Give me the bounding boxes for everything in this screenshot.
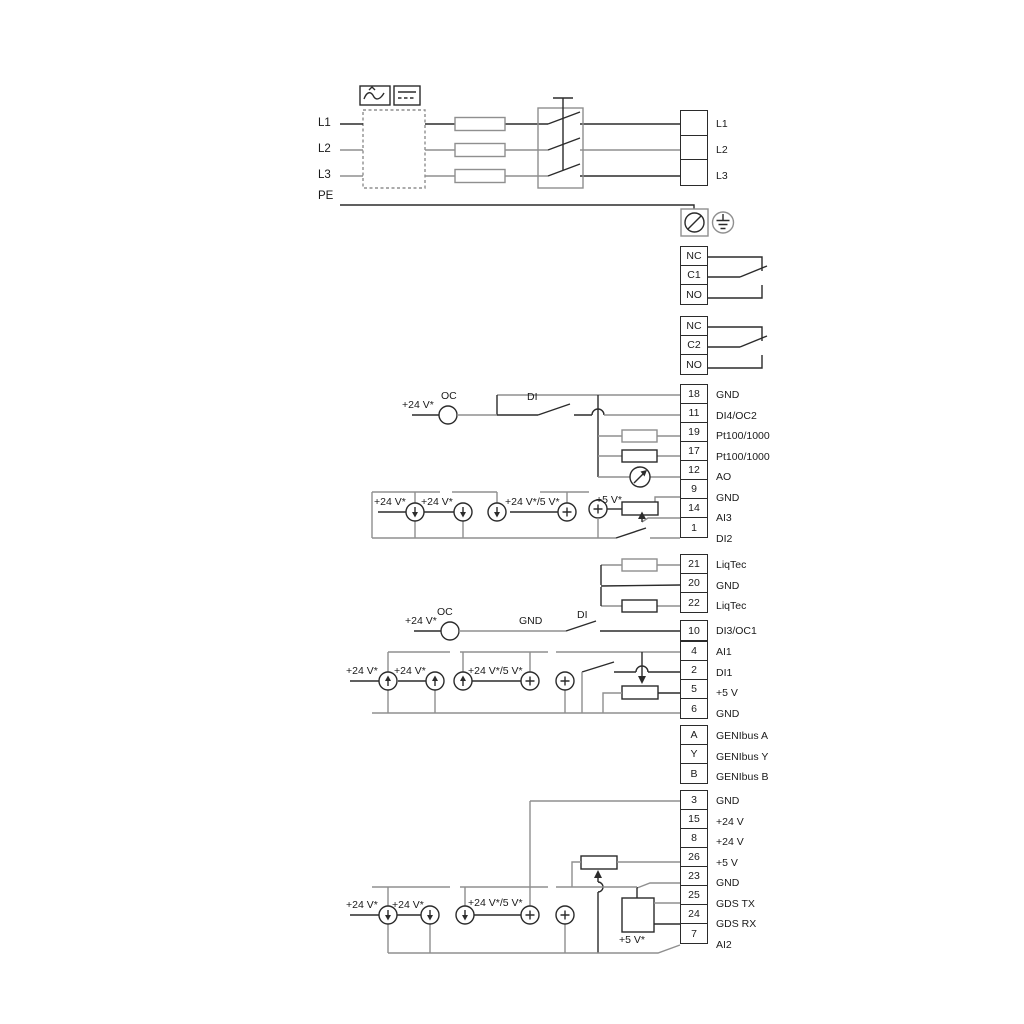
terminal-cell: C2 — [681, 336, 707, 355]
terminal-block-io: 18 11 19 17 12 9 14 1 — [680, 384, 708, 538]
gds-sensor-box — [622, 898, 654, 932]
terminal-label: DI2 — [716, 529, 770, 550]
terminal-cell: 8 — [681, 829, 707, 848]
terminal-label: Pt100/1000 — [716, 447, 770, 468]
terminal-cell: A — [681, 726, 707, 745]
terminal-label: GND — [716, 873, 756, 894]
terminal-label: LiqTec — [716, 555, 746, 576]
terminal-cell: 22 — [681, 593, 707, 612]
terminal-label: LiqTec — [716, 596, 746, 617]
ac-sine-icon — [364, 93, 384, 99]
terminal-label: GND — [716, 385, 770, 406]
ac-symbol-box — [360, 86, 390, 105]
label-plus24v: +24 V* — [374, 496, 406, 508]
ac-caret-icon — [369, 87, 375, 90]
terminal-label: GND — [716, 576, 746, 597]
fuse-l2 — [455, 144, 505, 157]
label-plus24v: +24 V* — [405, 615, 437, 627]
ai3-potentiometer — [622, 502, 658, 515]
label-plus24v: +24 V* — [346, 665, 378, 677]
fuse-l3 — [455, 170, 505, 183]
terminal-label: GND — [716, 488, 770, 509]
terminal-cell: 10 — [681, 621, 707, 640]
terminal-label: AI2 — [716, 935, 756, 956]
label-plus24v: +24 V* — [346, 899, 378, 911]
terminal-cell: 9 — [681, 480, 707, 499]
pt100-sensor-1 — [622, 430, 657, 442]
terminal-cell: 4 — [681, 642, 707, 661]
terminal-label: GND — [716, 704, 739, 725]
di3-labels: DI3/OC1 — [716, 621, 757, 642]
switch-blades — [548, 112, 580, 176]
terminal-cell: 20 — [681, 574, 707, 593]
terminal-cell: 2 — [681, 661, 707, 680]
input-label-l1: L1 — [318, 117, 331, 129]
label-plus24v: +24 V* — [421, 496, 453, 508]
terminal-label: AI1 — [716, 642, 739, 663]
switch-handle — [553, 98, 573, 170]
label-plus24v: +24 V* — [402, 399, 434, 411]
terminal-label: GENIbus Y — [716, 747, 769, 768]
ai1-potentiometer — [622, 686, 658, 699]
terminal-cell — [681, 160, 707, 185]
terminal-block-relay2: NC C2 NO — [680, 316, 708, 375]
terminal-cell: 1 — [681, 518, 707, 537]
terminal-label: GENIbus B — [716, 767, 769, 788]
terminal-cell: 12 — [681, 461, 707, 480]
terminal-block-relay1: NC C1 NO — [680, 246, 708, 305]
di3-wiring — [414, 621, 680, 640]
ai1-labels: AI1 DI1 +5 V GND — [716, 642, 739, 724]
terminal-label: +5 V — [716, 683, 739, 704]
label-di: DI — [527, 391, 538, 403]
terminal-label: L2 — [716, 137, 728, 163]
label-plus24v-5v: +24 V*/5 V* — [505, 496, 560, 508]
terminal-block-di3: 10 — [680, 620, 708, 641]
terminal-label: DI1 — [716, 663, 739, 684]
terminal-cell: 7 — [681, 924, 707, 943]
terminal-cell: 3 — [681, 791, 707, 810]
label-oc: OC — [441, 390, 457, 402]
relay-contacts — [708, 257, 767, 368]
label-gnd: GND — [519, 615, 542, 627]
terminal-label: DI4/OC2 — [716, 406, 770, 427]
terminal-label: +24 V — [716, 832, 756, 853]
input-label-l3: L3 — [318, 169, 331, 181]
mains-output-labels: L1 L2 L3 — [716, 111, 728, 189]
terminal-label: DI3/OC1 — [716, 621, 757, 642]
input-label-l2: L2 — [318, 143, 331, 155]
terminal-block-ai1: 4 2 5 6 — [680, 641, 708, 719]
terminal-cell: 11 — [681, 404, 707, 423]
terminal-cell: 15 — [681, 810, 707, 829]
liqtec-wiring — [601, 559, 680, 612]
bottom-group — [350, 801, 680, 953]
terminal-block-mains — [680, 110, 708, 186]
terminal-cell: 25 — [681, 886, 707, 905]
terminal-label: GND — [716, 791, 756, 812]
ai1-group — [350, 652, 680, 713]
label-plus5v: +5 V* — [619, 934, 645, 946]
terminal-label: GENIbus A — [716, 726, 769, 747]
terminal-cell: 24 — [681, 905, 707, 924]
terminal-cell — [681, 136, 707, 161]
label-oc: OC — [437, 606, 453, 618]
terminal-label: GDS RX — [716, 914, 756, 935]
terminal-block-genibus: A Y B — [680, 725, 708, 784]
io-labels: GND DI4/OC2 Pt100/1000 Pt100/1000 AO GND… — [716, 385, 770, 549]
dc-symbol-box — [394, 86, 420, 105]
pt100-sensor-2 — [622, 450, 657, 462]
terminal-cell: 23 — [681, 867, 707, 886]
terminal-cell: 21 — [681, 555, 707, 574]
liqtec-labels: LiqTec GND LiqTec — [716, 555, 746, 617]
liqtec-sensor-1 — [622, 559, 657, 571]
liqtec-sensor-2 — [622, 600, 657, 612]
terminal-label: +24 V — [716, 812, 756, 833]
terminal-label: +5 V — [716, 853, 756, 874]
terminal-cell: NC — [681, 247, 707, 266]
label-plus24v-5v: +24 V*/5 V* — [468, 897, 523, 909]
terminal-cell: 6 — [681, 699, 707, 718]
terminal-label: L1 — [716, 111, 728, 137]
terminal-block-bottom: 3 15 8 26 23 25 24 7 — [680, 790, 708, 944]
terminal-label: GDS TX — [716, 894, 756, 915]
terminal-cell: 17 — [681, 442, 707, 461]
terminal-cell: NO — [681, 285, 707, 304]
label-plus24v: +24 V* — [394, 665, 426, 677]
power-section — [340, 86, 734, 236]
terminal-label: AO — [716, 467, 770, 488]
terminal-label: Pt100/1000 — [716, 426, 770, 447]
terminal-cell: 14 — [681, 499, 707, 518]
oc1-output-icon — [441, 622, 459, 640]
oc2-output-icon — [439, 406, 457, 424]
genibus-labels: GENIbus A GENIbus Y GENIbus B — [716, 726, 769, 788]
terminal-cell: 19 — [681, 423, 707, 442]
terminal-cell: 5 — [681, 680, 707, 699]
label-plus24v-5v: +24 V*/5 V* — [468, 665, 523, 677]
ai2-potentiometer — [581, 856, 617, 869]
input-label-pe: PE — [318, 190, 333, 202]
wiring-diagram-page: L1 L2 L3 PE L1 L2 L3 NC C1 NO NC C2 NO 1… — [0, 0, 1024, 1024]
label-plus5v: +5 V* — [596, 494, 622, 506]
io-top-wiring — [412, 395, 680, 487]
label-plus24v: +24 V* — [392, 899, 424, 911]
terminal-cell: NO — [681, 355, 707, 374]
bottom-labels: GND +24 V +24 V +5 V GND GDS TX GDS RX A… — [716, 791, 756, 955]
terminal-label: L3 — [716, 163, 728, 189]
frequency-converter-box — [363, 110, 425, 188]
terminal-block-liqtec: 21 20 22 — [680, 554, 708, 613]
terminal-cell: NC — [681, 317, 707, 336]
terminal-cell: B — [681, 764, 707, 783]
terminal-label: AI3 — [716, 508, 770, 529]
wiring-svg — [0, 0, 1024, 1024]
label-di: DI — [577, 609, 588, 621]
terminal-cell: Y — [681, 745, 707, 764]
terminal-cell: 18 — [681, 385, 707, 404]
terminal-cell: C1 — [681, 266, 707, 285]
pe-wire — [340, 205, 694, 209]
terminal-cell: 26 — [681, 848, 707, 867]
fuse-l1 — [455, 118, 505, 131]
terminal-cell — [681, 111, 707, 136]
